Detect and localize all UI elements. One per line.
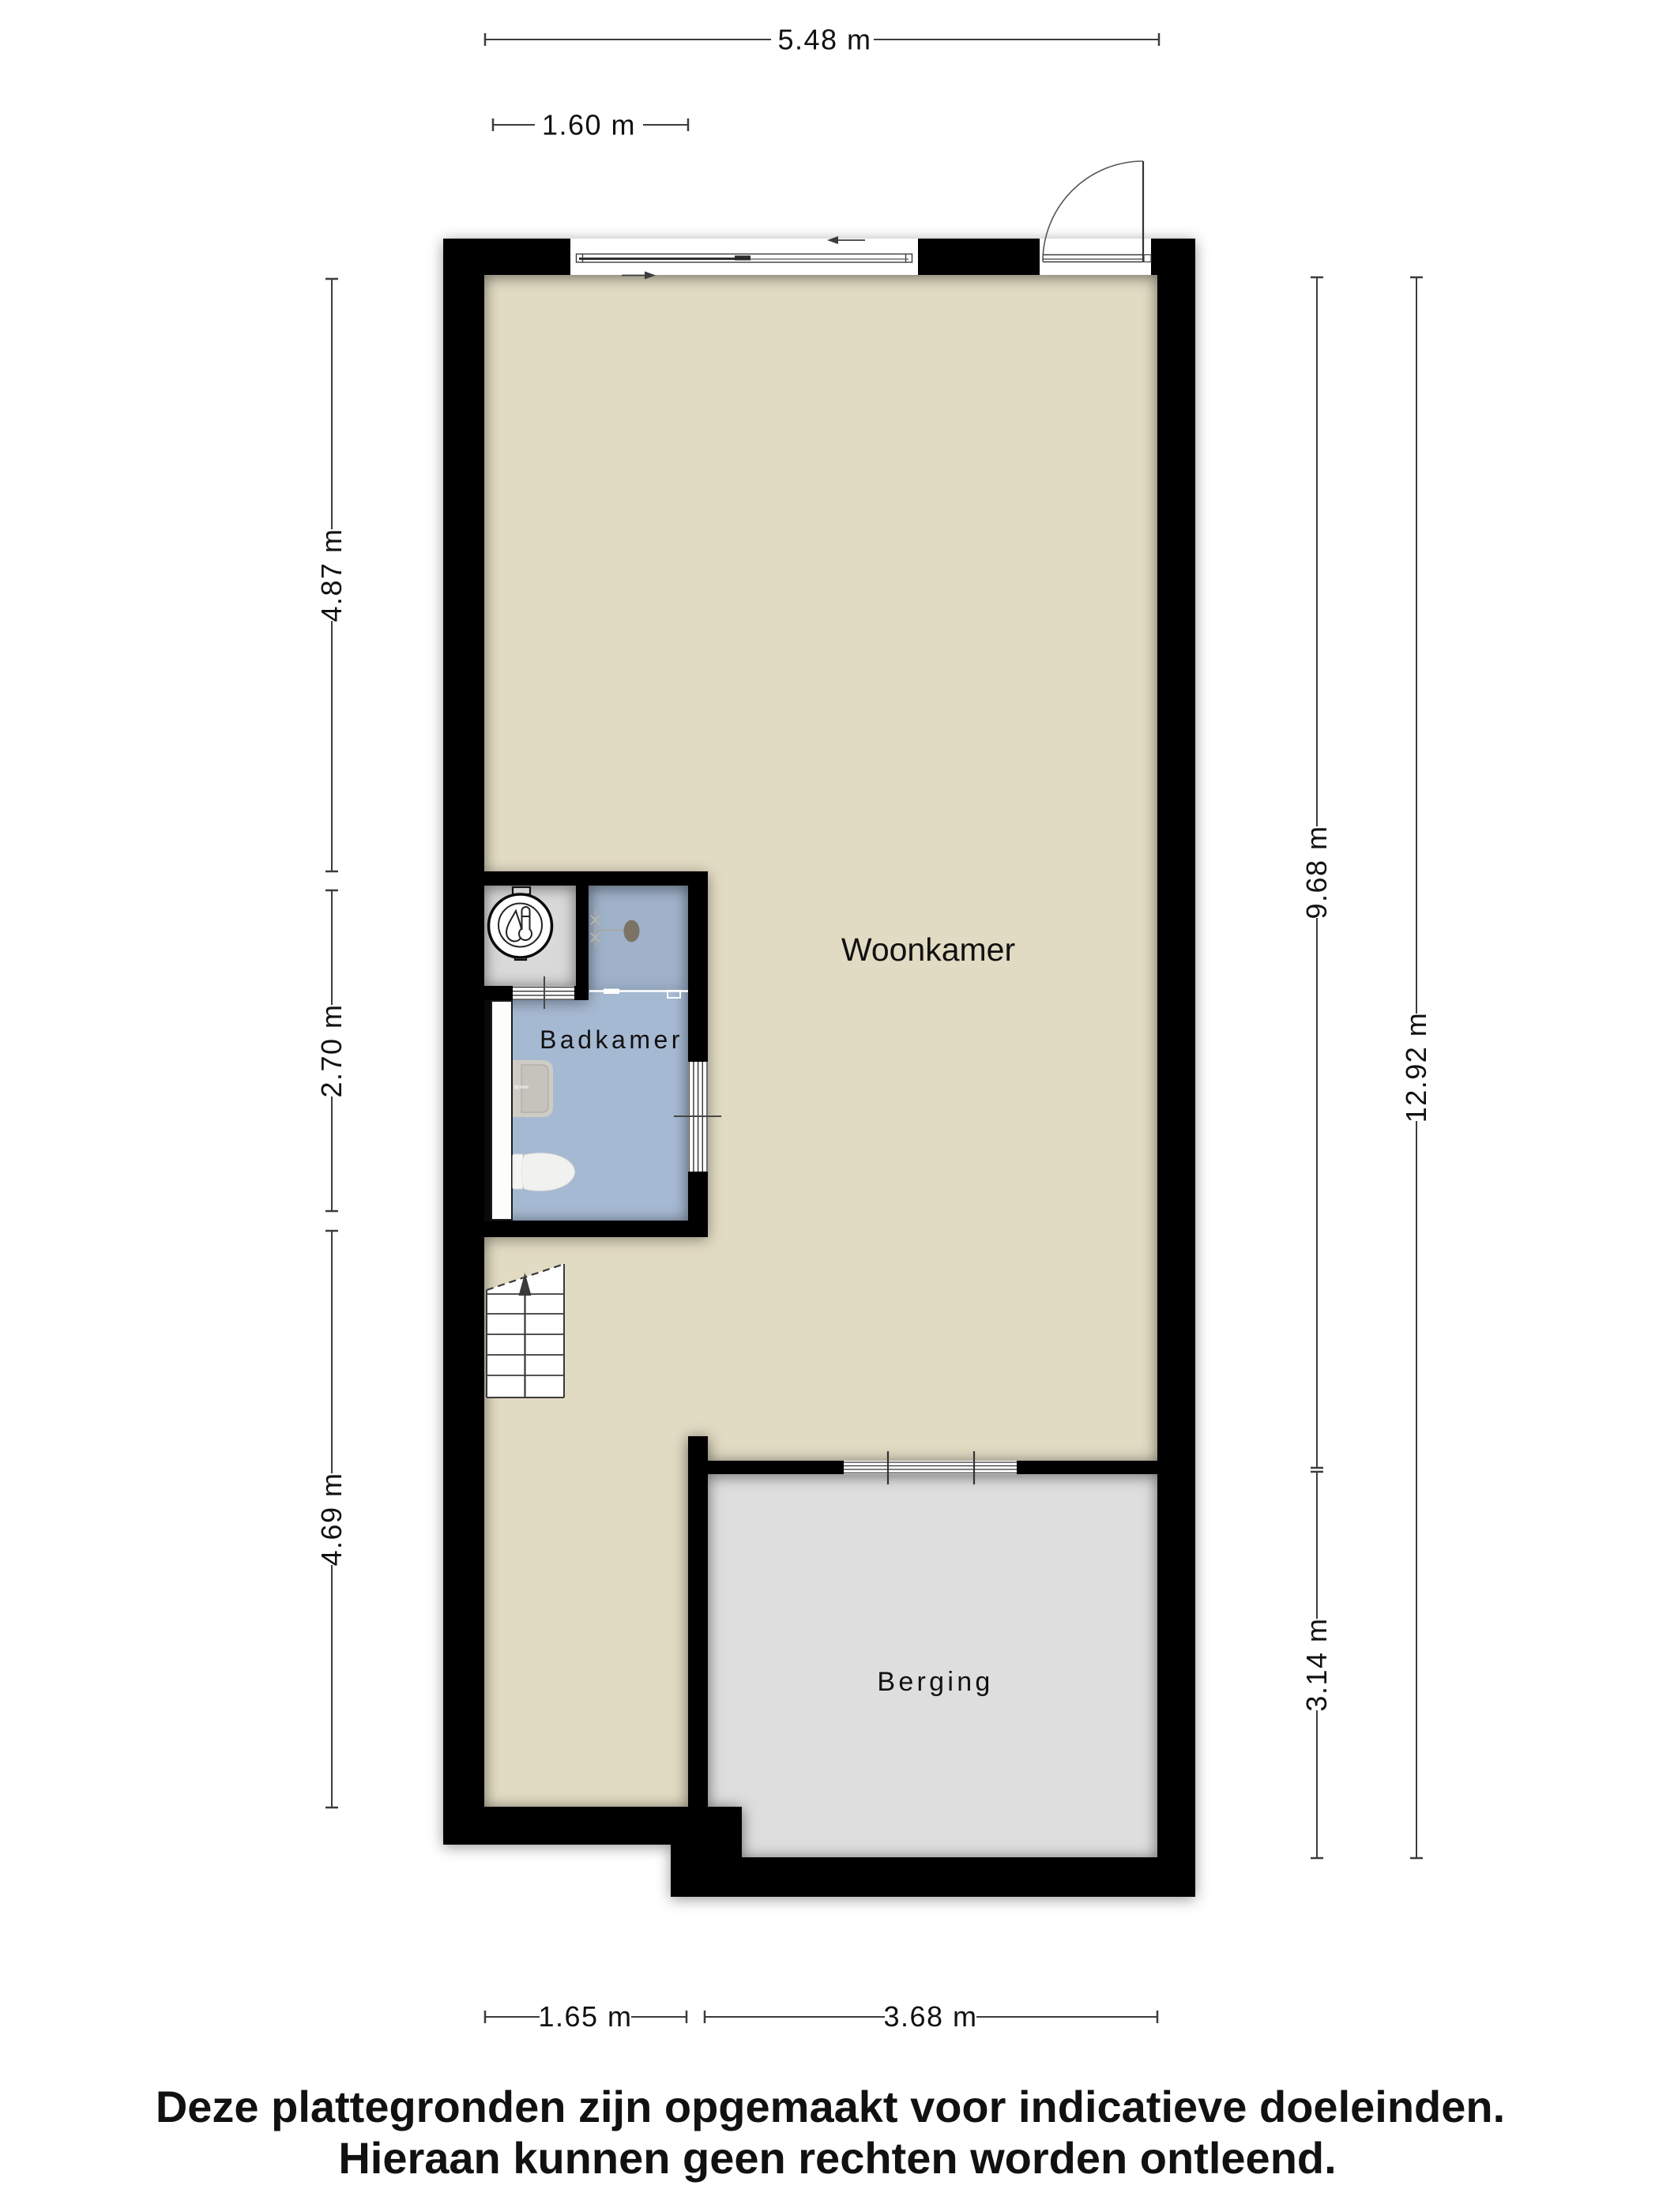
svg-text:12.92 m: 12.92 m xyxy=(1400,1012,1432,1123)
svg-text:4.87 m: 4.87 m xyxy=(315,528,348,622)
svg-text:4.69 m: 4.69 m xyxy=(315,1472,348,1566)
svg-text:3.68 m: 3.68 m xyxy=(883,2000,977,2033)
svg-text:9.68 m: 9.68 m xyxy=(1300,825,1333,919)
svg-text:5.48 m: 5.48 m xyxy=(777,24,871,56)
svg-text:Deze plattegronden zijn opgema: Deze plattegronden zijn opgemaakt voor i… xyxy=(156,2082,1505,2131)
svg-text:3.14 m: 3.14 m xyxy=(1300,1617,1333,1711)
svg-text:1.60 m: 1.60 m xyxy=(542,109,636,141)
svg-text:Berging: Berging xyxy=(877,1667,993,1697)
svg-text:Badkamer: Badkamer xyxy=(540,1025,683,1054)
svg-text:Woonkamer: Woonkamer xyxy=(841,931,1015,968)
svg-text:2.70 m: 2.70 m xyxy=(315,1003,348,1097)
svg-text:Hieraan kunnen geen rechten wo: Hieraan kunnen geen rechten worden ontle… xyxy=(338,2133,1336,2183)
svg-text:1.65 m: 1.65 m xyxy=(538,2000,632,2033)
